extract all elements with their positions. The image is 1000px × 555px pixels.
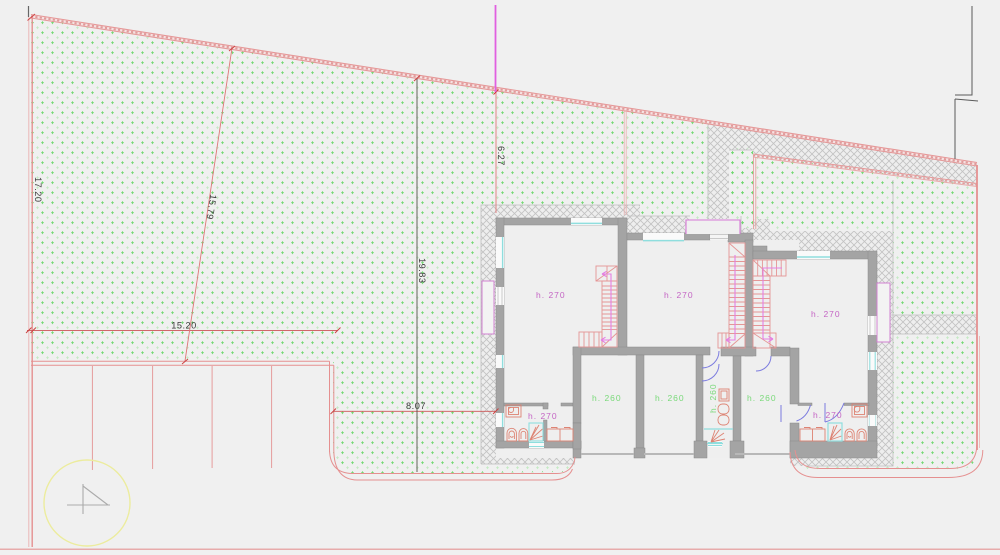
svg-text:6.27: 6.27 [496, 146, 506, 166]
svg-text:h. 270: h. 270 [811, 309, 841, 319]
svg-text:h. 270: h. 270 [536, 290, 566, 300]
svg-text:h. 260: h. 260 [592, 393, 622, 403]
svg-text:17.20: 17.20 [33, 177, 43, 203]
svg-text:h. 260: h. 260 [747, 393, 777, 403]
svg-text:h. 270: h. 270 [813, 410, 843, 420]
svg-text:h. 270: h. 270 [528, 411, 558, 421]
svg-text:h. 260: h. 260 [708, 383, 718, 413]
svg-text:19.83: 19.83 [417, 258, 427, 284]
svg-text:15.20: 15.20 [171, 321, 197, 331]
svg-text:8.07: 8.07 [406, 401, 426, 411]
svg-text:h. 260: h. 260 [655, 393, 685, 403]
svg-text:h. 270: h. 270 [664, 290, 694, 300]
